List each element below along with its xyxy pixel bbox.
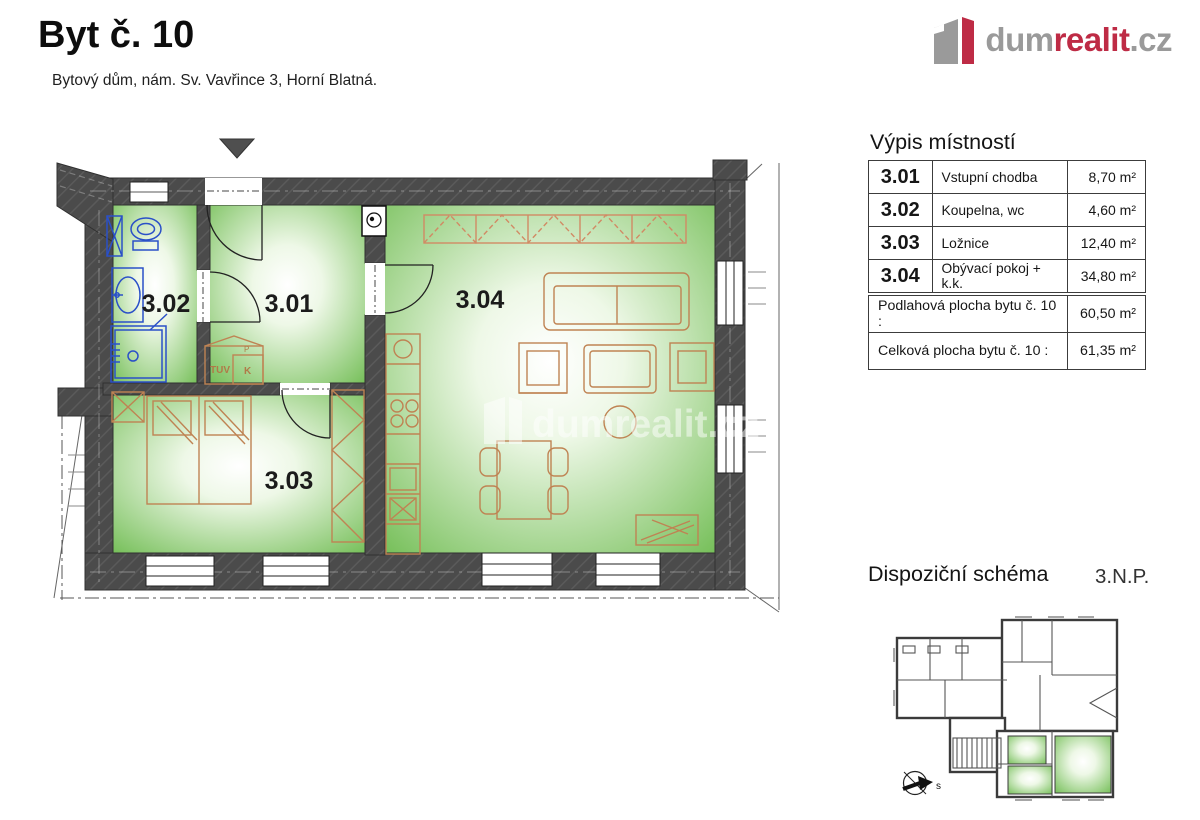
room-area: 4,60 m² — [1068, 194, 1146, 227]
logo-part-dum: dum — [985, 21, 1053, 58]
room-name: Vstupní chodba — [932, 161, 1068, 194]
room-list-title: Výpis místností — [870, 130, 1148, 155]
room-label-302: 3.02 — [142, 290, 191, 318]
room-area: 34,80 m² — [1068, 260, 1146, 295]
room-name: Obývací pokoj + k.k. — [932, 260, 1068, 295]
logo-part-realit: realit — [1054, 21, 1130, 58]
room-label-304: 3.04 — [456, 286, 505, 314]
brand-logo-icon — [932, 14, 976, 64]
window-icon — [717, 261, 743, 325]
brand-logo-text: dumrealit.cz — [985, 23, 1172, 56]
room-label-303: 3.03 — [265, 467, 314, 495]
room-number: 3.01 — [869, 161, 933, 194]
room-303-fill — [113, 395, 365, 553]
floor-plan-canvas: TUV P K 3.02 3.01 3.04 3.03 dumrealit.cz — [0, 0, 1200, 820]
window-icon — [263, 556, 329, 586]
closet-label-k: K — [244, 366, 252, 377]
room-label-301: 3.01 — [265, 290, 314, 318]
table-row-total: Celková plocha bytu č. 10 : 61,35 m² — [869, 333, 1146, 370]
room-list: Výpis místností 3.01 Vstupní chodba 8,70… — [868, 130, 1148, 370]
table-row: 3.01 Vstupní chodba 8,70 m² — [869, 161, 1146, 194]
room-number: 3.03 — [869, 227, 933, 260]
watermark-text: dumrealit.cz — [532, 403, 760, 446]
table-row: 3.03 Ložnice 12,40 m² — [869, 227, 1146, 260]
table-row: 3.04 Obývací pokoj + k.k. 34,80 m² — [869, 260, 1146, 295]
total-label: Celková plocha bytu č. 10 : — [869, 333, 1068, 370]
compass-label: s — [936, 781, 941, 792]
closet-label-tuv: TUV — [210, 365, 230, 376]
page-subtitle: Bytový dům, nám. Sv. Vavřince 3, Horní B… — [52, 72, 377, 90]
chimney-icon — [362, 206, 386, 236]
watermark-logo-icon — [484, 397, 505, 444]
schema-floor-label: 3.N.P. — [1095, 565, 1149, 589]
watermark-logo-icon — [509, 397, 522, 444]
total-area: 60,50 m² — [1068, 294, 1146, 333]
brand-logo: dumrealit.cz — [932, 14, 1172, 64]
disposition-schematic: s — [894, 617, 1117, 800]
schema-title: Dispoziční schéma — [868, 562, 1048, 587]
room-name: Ložnice — [932, 227, 1068, 260]
table-row-total: Podlahová plocha bytu č. 10 : 60,50 m² — [869, 294, 1146, 333]
total-area: 61,35 m² — [1068, 333, 1146, 370]
room-name: Koupelna, wc — [932, 194, 1068, 227]
page-title: Byt č. 10 — [38, 14, 194, 57]
room-number: 3.02 — [869, 194, 933, 227]
window-icon — [482, 553, 552, 586]
closet-label-p: P — [244, 345, 249, 354]
window-icon — [146, 556, 214, 586]
room-number: 3.04 — [869, 260, 933, 295]
room-list-table: 3.01 Vstupní chodba 8,70 m² 3.02 Koupeln… — [868, 160, 1146, 370]
logo-part-cz: .cz — [1129, 21, 1172, 58]
table-row: 3.02 Koupelna, wc 4,60 m² — [869, 194, 1146, 227]
window-top-left — [130, 182, 168, 202]
room-area: 12,40 m² — [1068, 227, 1146, 260]
room-area: 8,70 m² — [1068, 161, 1146, 194]
total-label: Podlahová plocha bytu č. 10 : — [869, 294, 1068, 333]
compass-icon: s — [903, 772, 941, 795]
room-304-fill — [385, 205, 715, 553]
window-icon — [596, 553, 660, 586]
entrance-marker-icon — [220, 139, 254, 158]
